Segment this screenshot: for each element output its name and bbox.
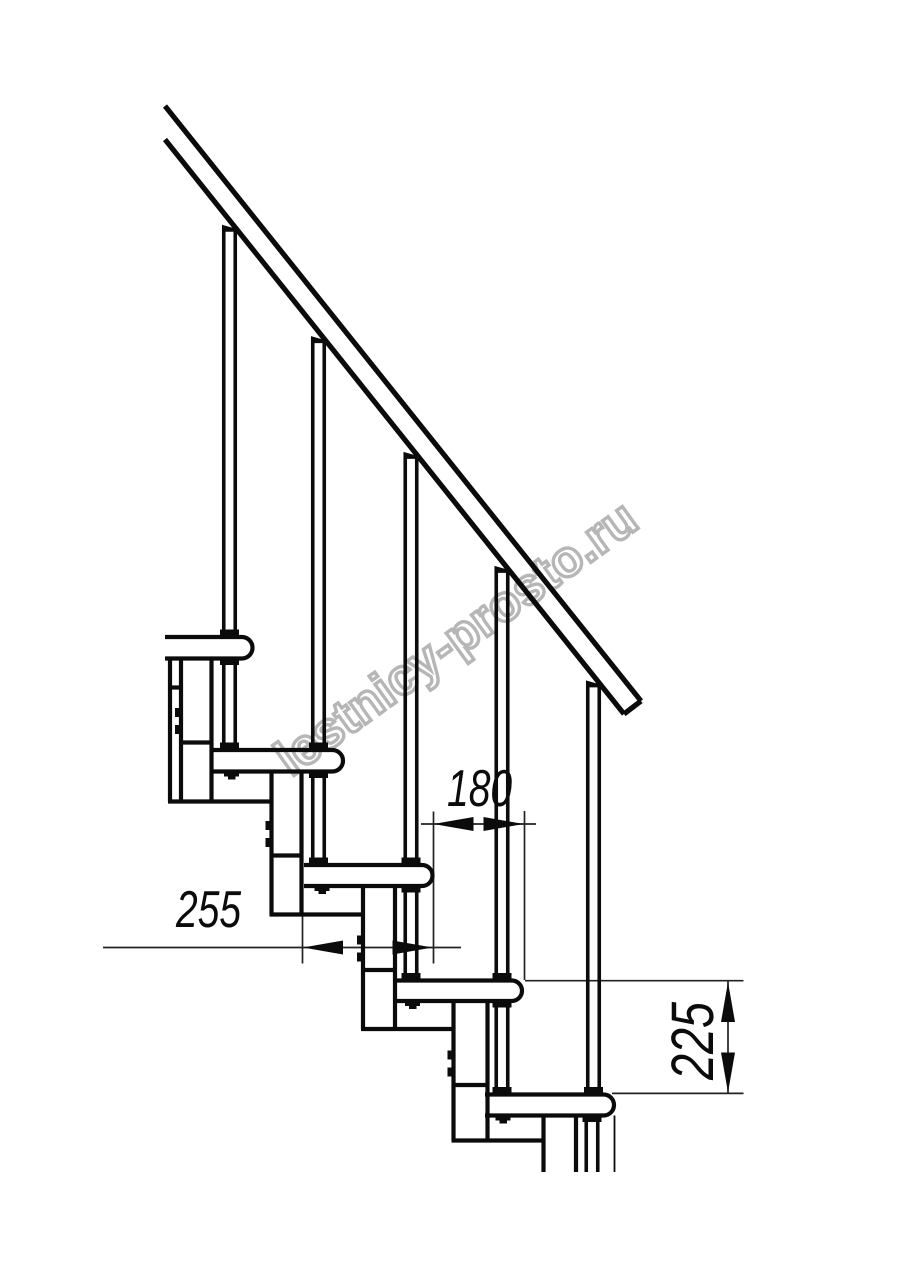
svg-text:255: 255	[175, 881, 242, 939]
svg-text:180: 180	[447, 760, 512, 818]
svg-text:225: 225	[659, 1001, 726, 1080]
